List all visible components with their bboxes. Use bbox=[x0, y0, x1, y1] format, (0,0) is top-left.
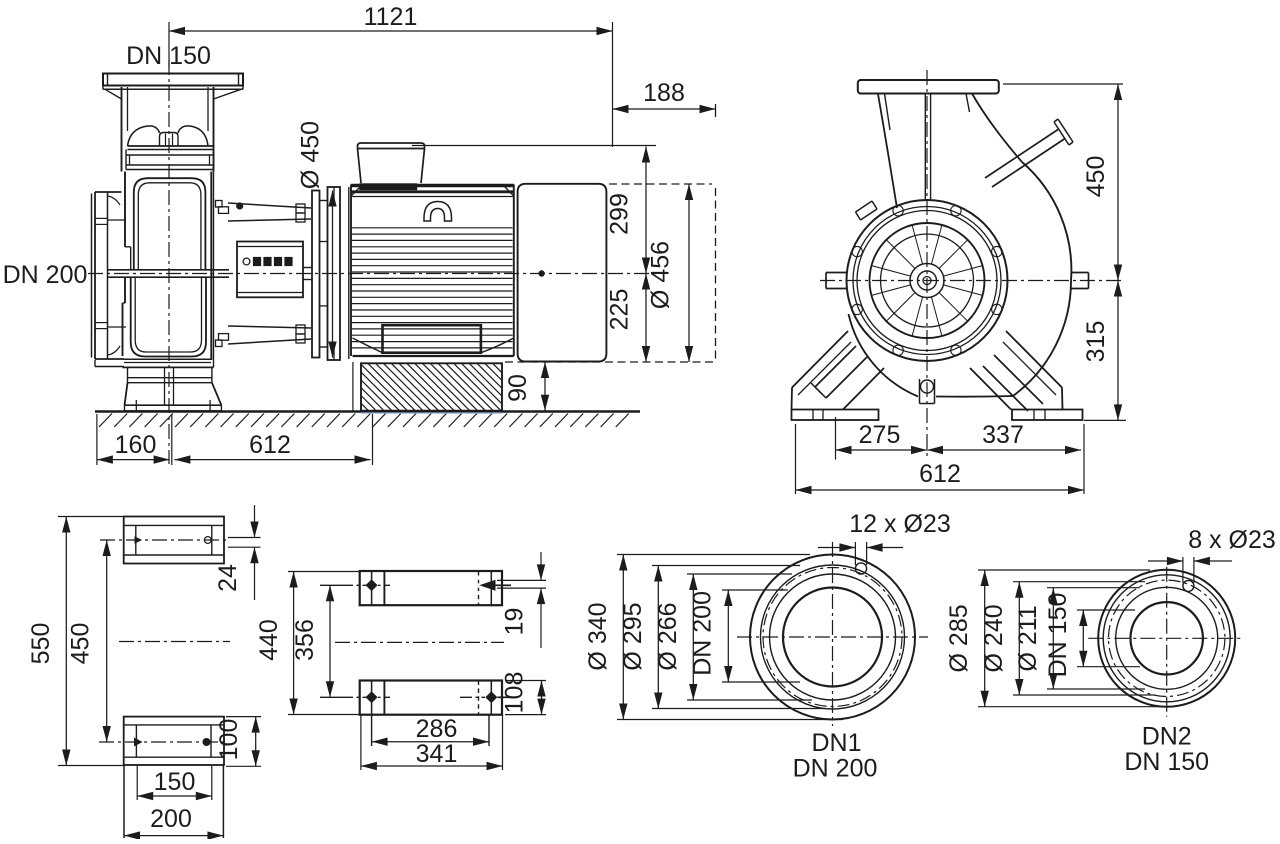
svg-text:286: 286 bbox=[416, 715, 458, 743]
svg-text:8 x Ø23: 8 x Ø23 bbox=[1188, 526, 1276, 554]
svg-text:299: 299 bbox=[606, 193, 634, 235]
svg-text:Ø 340: Ø 340 bbox=[584, 602, 612, 670]
svg-text:Ø 295: Ø 295 bbox=[619, 602, 647, 670]
svg-text:DN2: DN2 bbox=[1142, 723, 1192, 751]
svg-text:188: 188 bbox=[643, 79, 685, 107]
svg-text:DN 200: DN 200 bbox=[3, 261, 88, 289]
svg-text:341: 341 bbox=[416, 740, 458, 768]
svg-text:440: 440 bbox=[255, 619, 283, 661]
svg-text:24: 24 bbox=[214, 564, 242, 592]
svg-text:Ø 450: Ø 450 bbox=[297, 121, 325, 189]
svg-text:Ø 211: Ø 211 bbox=[1014, 605, 1042, 671]
svg-text:Ø 285: Ø 285 bbox=[945, 604, 973, 672]
svg-text:DN 150: DN 150 bbox=[1044, 593, 1072, 678]
svg-text:DN 150: DN 150 bbox=[1124, 748, 1209, 776]
svg-text:612: 612 bbox=[249, 431, 291, 459]
svg-text:337: 337 bbox=[982, 421, 1024, 449]
svg-text:DN 150: DN 150 bbox=[126, 42, 211, 70]
svg-text:Ø 266: Ø 266 bbox=[654, 602, 682, 670]
svg-text:DN1: DN1 bbox=[811, 729, 861, 757]
svg-text:Ø 240: Ø 240 bbox=[980, 604, 1008, 672]
svg-text:612: 612 bbox=[919, 460, 961, 488]
svg-text:150: 150 bbox=[154, 768, 196, 796]
svg-text:225: 225 bbox=[606, 289, 634, 331]
svg-text:19: 19 bbox=[501, 608, 529, 636]
svg-text:450: 450 bbox=[1082, 156, 1110, 198]
svg-text:356: 356 bbox=[291, 619, 319, 661]
svg-text:160: 160 bbox=[115, 431, 157, 459]
svg-text:DN 200: DN 200 bbox=[689, 591, 717, 676]
svg-text:275: 275 bbox=[859, 421, 901, 449]
svg-text:200: 200 bbox=[150, 805, 192, 833]
svg-text:550: 550 bbox=[27, 623, 55, 665]
svg-text:DN 200: DN 200 bbox=[793, 755, 878, 783]
svg-text:450: 450 bbox=[67, 623, 95, 665]
svg-text:12 x Ø23: 12 x Ø23 bbox=[849, 510, 950, 538]
svg-text:100: 100 bbox=[215, 719, 243, 761]
svg-text:Ø 456: Ø 456 bbox=[647, 241, 675, 309]
svg-text:108: 108 bbox=[501, 672, 529, 714]
svg-text:90: 90 bbox=[504, 374, 532, 402]
svg-text:315: 315 bbox=[1082, 321, 1110, 363]
svg-text:1121: 1121 bbox=[364, 3, 418, 31]
